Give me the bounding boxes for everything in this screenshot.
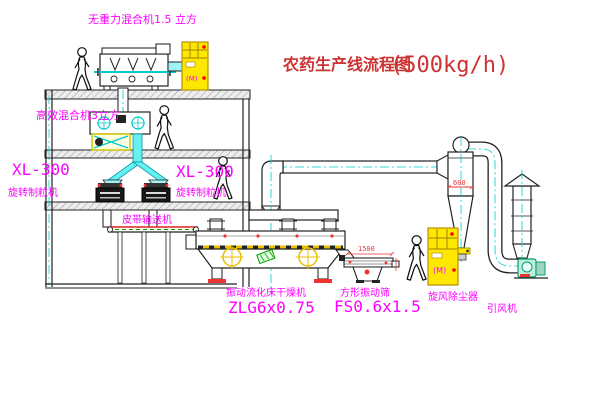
granulator-name-right: 旋转制粒机 (176, 186, 226, 199)
cyclone-label: 旋风除尘器 (428, 290, 478, 303)
granulator-right (142, 180, 170, 202)
fan-inlet-eye (522, 262, 532, 272)
person-figure-roof (73, 48, 91, 90)
granulator-body (142, 188, 170, 202)
granulator-downpipe (103, 210, 111, 227)
top-mixer-label: 无重力混合机1.5 立方 (88, 12, 197, 26)
granulator-model-left: XL-300 (12, 160, 70, 179)
title-capacity: (500kg/h) (390, 53, 509, 78)
motor-symbol: (M) (433, 266, 446, 275)
fan-motor (536, 262, 545, 275)
duct-reducer (437, 155, 448, 179)
mid-slab (45, 150, 250, 158)
roof-slab (45, 90, 250, 99)
drawing-title: 农药生产线流程图 (500kg/h) (282, 53, 509, 78)
dryer-foot (208, 279, 226, 283)
dryer-top-stubs (207, 219, 339, 231)
belt-roller (107, 227, 112, 232)
cyclone-dimension: 600 (453, 179, 466, 187)
control-cabinet-right: (M) (428, 228, 458, 285)
belt-conveyor-label: 皮带输送机 (122, 213, 172, 226)
exhaust-duct (262, 149, 521, 294)
flow-diagram: (M) (0, 0, 600, 403)
drive-pulley (95, 138, 103, 146)
screen-dimension: 1500 (358, 245, 375, 253)
screen-model-label: FS0.6x1.5 (334, 297, 421, 316)
screen-outlet (392, 261, 399, 267)
person-figure-ground (407, 236, 426, 280)
fluid-bed-dryer (186, 210, 358, 283)
cyclone-cylinder (448, 152, 473, 196)
riser-elbow (262, 161, 283, 212)
granulator-model-right: XL-300 (176, 162, 234, 181)
granulator-body (96, 188, 124, 202)
control-cabinet-top: (M) (182, 42, 208, 90)
exhaust-stack (505, 170, 539, 262)
granulator-name-left: 旋转制粒机 (8, 186, 58, 199)
indicator-lamp (202, 76, 206, 80)
motor-symbol: (M) (186, 75, 198, 83)
person-figure-mid (155, 106, 173, 149)
indicator-lamp (452, 268, 456, 272)
indicator-lamp (450, 232, 454, 236)
dryer-model-label: ZLG6x0.75 (228, 298, 315, 317)
mixer-outlet (168, 62, 182, 71)
granulator-slab (45, 202, 250, 210)
mid-mixer-label: 高效混合机3立方 (36, 108, 120, 122)
indicator-lamp (202, 45, 206, 49)
induced-draft-fan (514, 259, 548, 278)
fan-label: 引风机 (487, 302, 517, 315)
granulator-left (96, 180, 124, 202)
dryer-foot (314, 279, 332, 283)
